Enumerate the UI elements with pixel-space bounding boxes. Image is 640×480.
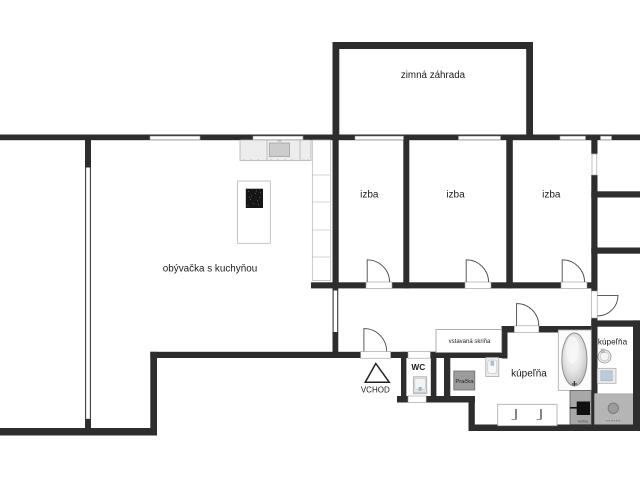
svg-text:WC: WC (411, 362, 425, 372)
svg-text:izba: izba (542, 190, 561, 201)
svg-text:kúpeľňa: kúpeľňa (511, 368, 547, 379)
svg-text:KOTOL: KOTOL (578, 420, 588, 424)
svg-text:izba: izba (446, 190, 465, 201)
svg-text:obývačka s kuchyňou: obývačka s kuchyňou (163, 264, 257, 275)
svg-text:kúpeľňa: kúpeľňa (598, 337, 628, 346)
svg-text:Pračka: Pračka (455, 379, 474, 385)
svg-text:vstavaná skriňa: vstavaná skriňa (449, 339, 491, 345)
svg-text:zimná záhrada: zimná záhrada (401, 70, 466, 81)
svg-text:izba: izba (360, 190, 379, 201)
svg-text:VCHOD: VCHOD (361, 386, 390, 395)
